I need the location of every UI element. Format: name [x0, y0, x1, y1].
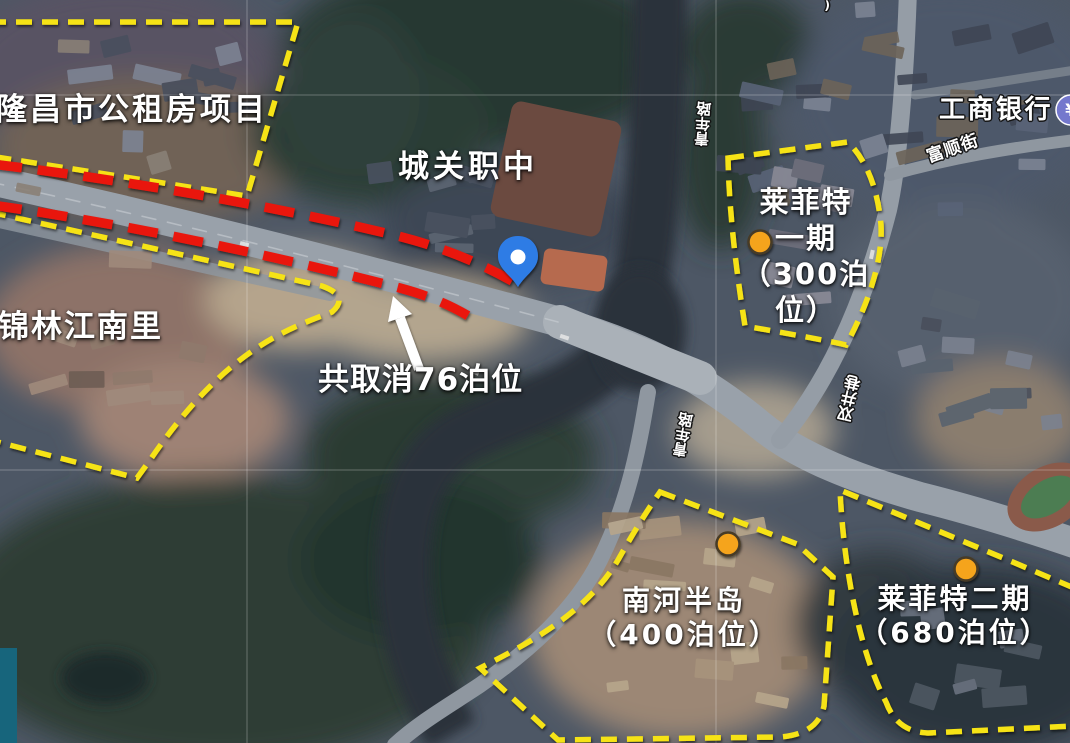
label-street-qingnian-north: 青年路 — [695, 101, 714, 147]
label-phase2-line2: （680泊位） — [859, 616, 1050, 650]
satellite-map-slide: ¥ 隆昌市公租房项目 城关职中 莱菲特 一期 （300泊 位） 工商银行 富顺街… — [0, 0, 1070, 743]
removed-parking-line-south — [0, 205, 472, 318]
bank-poi-icon[interactable]: ¥ — [1056, 95, 1070, 125]
label-street-partial-top: (第 — [821, 0, 835, 13]
label-nanhe-line1: 南河半岛 — [588, 584, 779, 618]
bank-icon-glyph: ¥ — [1065, 101, 1070, 121]
annotation-arrow — [388, 296, 419, 369]
label-phase1-line2: 一期 — [742, 220, 871, 256]
label-bank: 工商银行 — [939, 95, 1053, 126]
label-phase1-line4: 位） — [742, 292, 871, 328]
label-laifeite-phase1: 莱菲特 一期 （300泊 位） — [742, 184, 871, 328]
label-nanhe-line2: （400泊位） — [588, 618, 779, 652]
marker-phase2 — [955, 558, 978, 581]
label-cancelled-parking: 共取消76泊位 — [318, 362, 523, 399]
label-phase2-line1: 莱菲特二期 — [859, 582, 1050, 616]
marker-nanhe — [717, 533, 740, 556]
label-jinlin: 锦林江南里 — [0, 309, 163, 346]
slide-edge-accent — [0, 648, 17, 743]
label-laifeite-phase2: 莱菲特二期 （680泊位） — [859, 582, 1050, 650]
label-phase1-line3: （300泊 — [742, 256, 871, 292]
label-public-housing: 隆昌市公租房项目 — [0, 92, 268, 129]
label-phase1-line1: 莱菲特 — [742, 184, 871, 220]
label-school: 城关职中 — [398, 149, 538, 186]
label-nanhe: 南河半岛 （400泊位） — [588, 584, 779, 652]
